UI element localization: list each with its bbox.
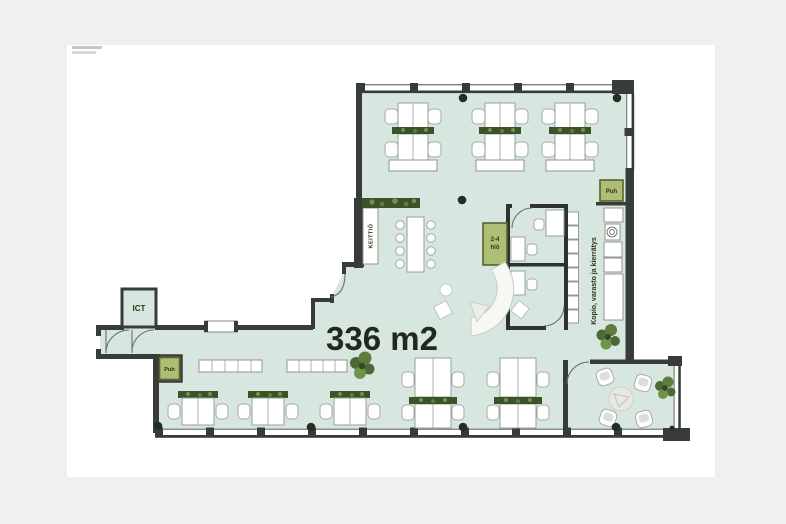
plant-shelf xyxy=(362,198,420,208)
room-label-phone-bottom: Puh xyxy=(164,367,175,373)
room-phone-booth-bottom: Puh xyxy=(158,356,182,382)
room-label-ict: ICT xyxy=(133,304,146,313)
area-label: 336 m2 xyxy=(326,320,438,357)
room-label-storage: Kopio, varasto ja kierrätys xyxy=(591,237,598,325)
room-ict: ICT xyxy=(122,289,156,327)
room-label-meeting-line2: hlö xyxy=(491,245,500,251)
room-label-meeting-line1: 2-4 xyxy=(491,237,500,243)
sheet-microtext xyxy=(72,46,102,54)
floor-plan-drawing: ICT KEITTIÖ xyxy=(0,0,786,524)
room-meeting-2-4: 2-4 hlö xyxy=(483,223,507,265)
room-label-phone-top: Puh xyxy=(606,189,618,195)
kitchen-counter: KEITTIÖ xyxy=(363,208,378,264)
room-label-kitchen: KEITTIÖ xyxy=(368,223,375,248)
